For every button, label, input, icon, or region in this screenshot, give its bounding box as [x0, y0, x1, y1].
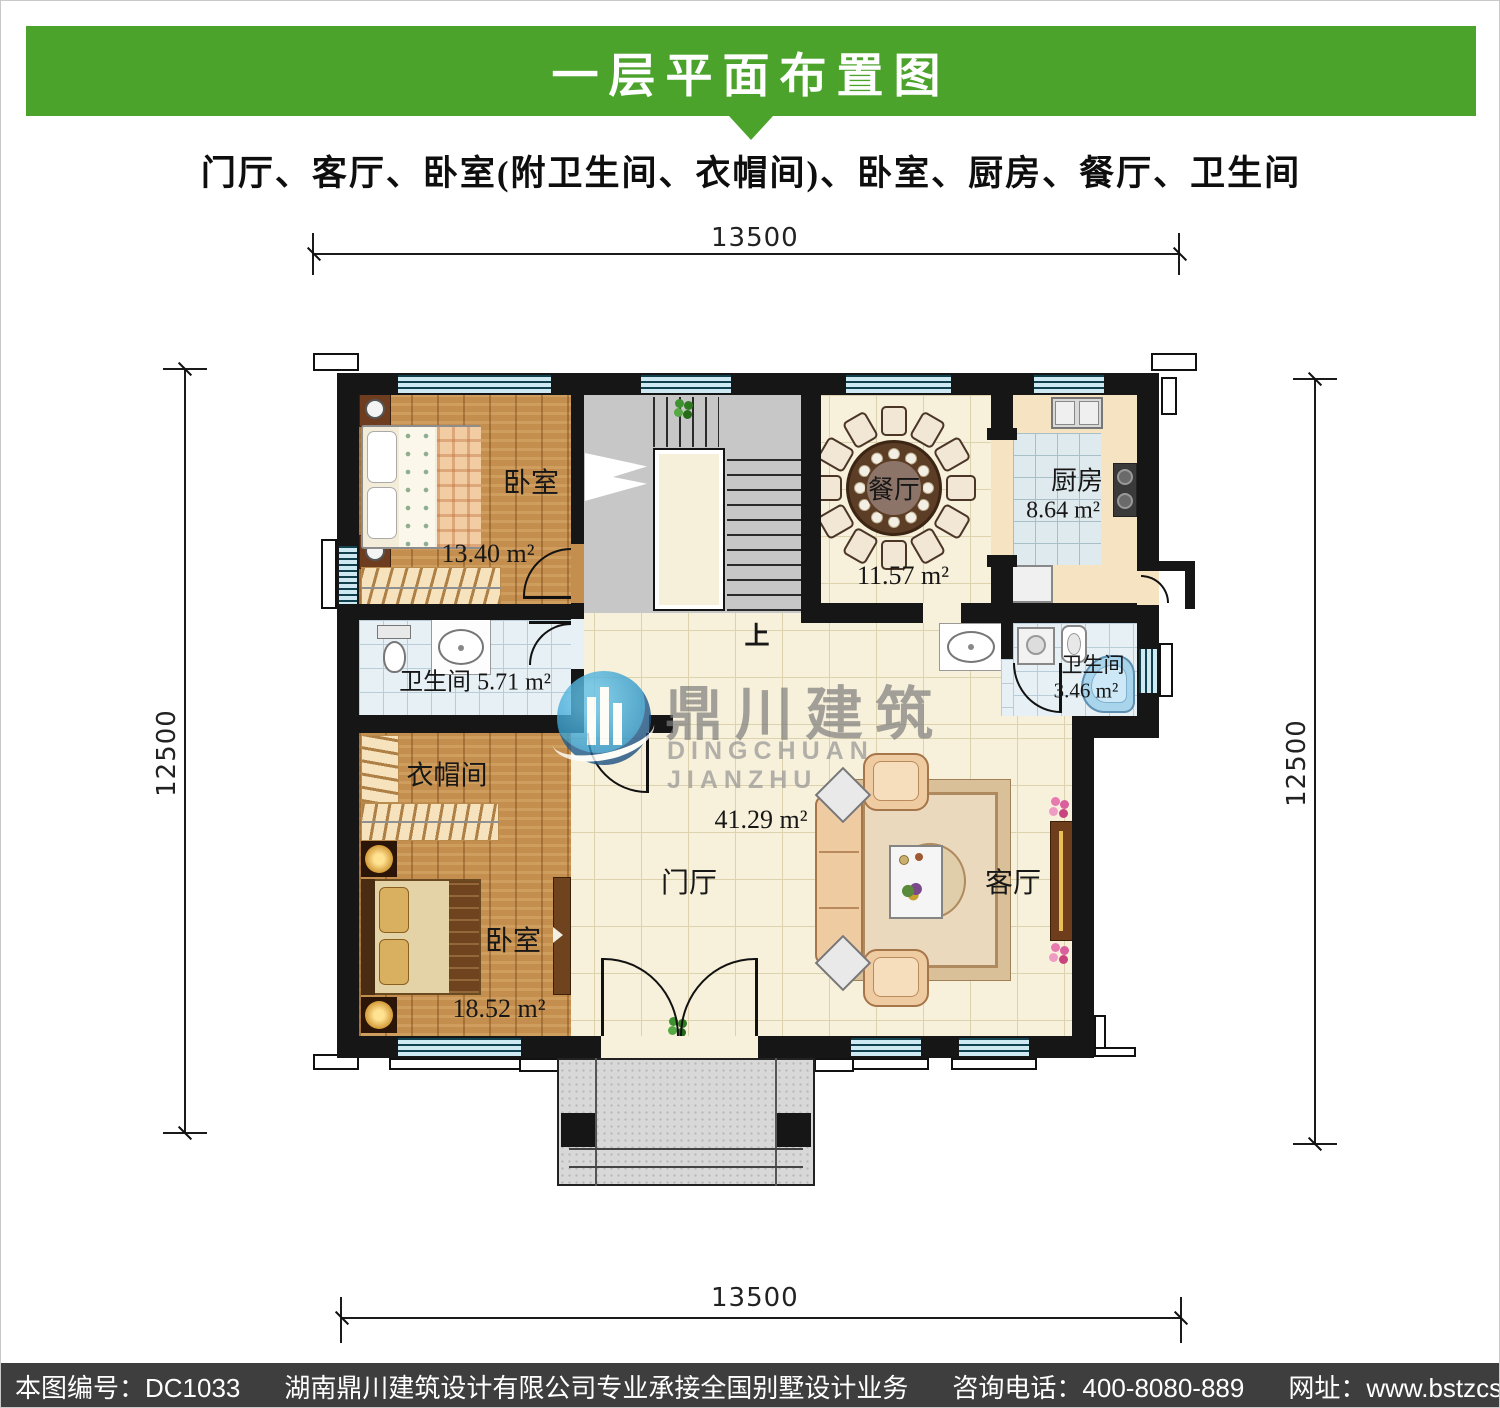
door-opening: [571, 544, 584, 603]
window-sill: [1159, 643, 1173, 697]
side-door-arc: [1141, 575, 1169, 603]
fridge: [1011, 565, 1053, 603]
toilet-icon: [377, 625, 411, 639]
footer-bar: 本图编号：DC1033 湖南鼎川建筑设计有限公司专业承接全国别墅设计业务 咨询电…: [1, 1363, 1500, 1408]
area-label-bedroom1: 13.40 m²: [441, 539, 534, 569]
rack-rod: [361, 821, 499, 823]
room-label-bedroom2: 卧室: [485, 919, 541, 959]
bed-blanket: [449, 881, 479, 993]
wall-segment: [1072, 716, 1094, 1058]
window: [641, 375, 731, 393]
window-sill: [1161, 377, 1177, 415]
sink-basin: [1079, 401, 1099, 425]
room-label-cloakroom: 衣帽间: [407, 754, 488, 793]
lamp-glow-icon: [365, 845, 393, 873]
window: [398, 1038, 521, 1056]
lamp-icon: [365, 399, 385, 419]
pillow: [379, 939, 409, 985]
room-label-bathroom1: 卫生间 5.71 m²: [399, 662, 551, 697]
table-decor: [915, 853, 923, 861]
hanger-rack: [361, 735, 399, 803]
window-sill: [814, 1058, 854, 1072]
area-label-dining: 11.57 m²: [857, 561, 949, 591]
door-jamb: [987, 555, 1017, 567]
room-area: 5.71 m²: [477, 670, 551, 696]
window: [1139, 649, 1157, 693]
door-leaf: [523, 596, 571, 599]
window: [398, 375, 551, 393]
area-label-kitchen: 8.64 m²: [1026, 498, 1100, 525]
window-sill: [1094, 1047, 1136, 1057]
pillow: [367, 487, 397, 539]
area-label-hall: 41.29 m²: [714, 805, 807, 835]
window-sill: [1151, 353, 1197, 371]
table-plant: [899, 881, 925, 901]
pillow: [367, 431, 397, 483]
stair-upper-flight: [653, 397, 719, 447]
sofa-cushion-line: [819, 907, 859, 909]
room-name: 卫生间: [399, 670, 471, 696]
window-sill: [519, 1058, 559, 1072]
porch-column: [561, 1113, 595, 1147]
window-sill: [1094, 1015, 1106, 1051]
dim-bottom-label: 13500: [711, 1283, 799, 1313]
footer-phone: 咨询电话：400-8080-889: [952, 1368, 1244, 1405]
area-label-bathroom2: 3.46 m²: [1054, 679, 1119, 704]
window: [851, 1038, 921, 1056]
window: [1034, 375, 1104, 393]
dim-top-line: [313, 253, 1179, 255]
tv-cabinet-line: [1059, 831, 1063, 931]
title-banner: 一层平面布置图: [26, 26, 1476, 116]
entrance-opening: [601, 1036, 758, 1058]
wall-segment: [821, 603, 923, 623]
flower-icon: [1051, 797, 1060, 806]
porch-step-line: [569, 1166, 803, 1168]
footer-company: 湖南鼎川建筑设计有限公司专业承接全国别墅设计业务: [284, 1368, 908, 1405]
plant-icon: [675, 399, 684, 408]
door-opening: [1001, 659, 1013, 716]
wall-segment: [359, 604, 571, 620]
room-label-living: 客厅: [985, 861, 1041, 901]
footer-sheet-number: 本图编号：DC1033: [15, 1368, 240, 1405]
window-sill: [389, 1058, 529, 1070]
window: [339, 546, 357, 604]
porch-column: [777, 1113, 811, 1147]
stair-void: [653, 448, 725, 611]
exterior-step-wall: [1185, 561, 1195, 609]
wardrobe-rod: [361, 587, 501, 589]
wall-segment: [801, 373, 821, 623]
stair-up-label: 上: [744, 616, 769, 652]
sink-basin: [1055, 401, 1075, 425]
room-label-kitchen: 厨房: [1051, 461, 1103, 498]
dim-right-label: 12500: [1282, 719, 1312, 807]
floorplan-sheet: 一层平面布置图 门厅、客厅、卧室(附卫生间、衣帽间)、卧室、厨房、餐厅、卫生间 …: [0, 0, 1500, 1408]
flower-icon: [1051, 943, 1060, 952]
area-label-bedroom2: 18.52 m²: [452, 994, 545, 1024]
stair-lower-flight: [727, 450, 801, 611]
pillow: [379, 887, 409, 933]
window-sill: [313, 353, 359, 371]
wall-segment: [961, 603, 1013, 623]
window: [959, 1038, 1029, 1056]
dim-top-label: 13500: [711, 223, 799, 253]
dim-bottom-line: [341, 1317, 1181, 1319]
dim-left-line: [184, 369, 186, 1134]
wall-segment: [1013, 603, 1137, 623]
bed-cover: [399, 427, 435, 547]
bed-blanket: [437, 427, 481, 547]
door-opening: [923, 603, 961, 623]
dim-right-line: [1314, 379, 1316, 1145]
lamp-glow-icon: [365, 1001, 393, 1029]
room-label-hall: 门厅: [661, 861, 717, 901]
porch-step-line: [569, 1148, 803, 1150]
burner: [1117, 493, 1133, 509]
sofa-cushion-line: [819, 851, 859, 853]
bed-headboard: [361, 879, 375, 995]
room-list-subtitle: 门厅、客厅、卧室(附卫生间、衣帽间)、卧室、厨房、餐厅、卫生间: [1, 145, 1500, 196]
window-sill: [321, 539, 337, 609]
wall-segment: [1001, 623, 1013, 659]
window-sill: [843, 1058, 929, 1070]
door-opening: [991, 440, 1013, 555]
room-label-dining: 餐厅: [868, 470, 920, 507]
watermark-en-text: DINGCHUAN JIANZHU: [667, 737, 1001, 795]
sink-drain: [458, 645, 464, 651]
window: [846, 375, 951, 393]
banner-pointer-triangle: [729, 116, 773, 140]
room-label-bedroom1: 卧室: [503, 461, 559, 501]
room-label-bathroom2: 卫生间: [1062, 649, 1125, 679]
page-title: 一层平面布置图: [552, 37, 951, 106]
window-sill: [951, 1058, 1037, 1070]
entrance-door-leaf: [755, 958, 758, 1036]
burner: [1117, 469, 1133, 485]
door-jamb: [987, 428, 1017, 440]
washer-drum: [1026, 635, 1046, 655]
watermark: 鼎川建筑 DINGCHUAN JIANZHU: [541, 649, 1001, 789]
table-decor: [899, 855, 909, 865]
dim-left-label: 12500: [152, 709, 182, 797]
footer-website: 网址：www.bstzcs.com: [1288, 1368, 1500, 1405]
armchair-cushion: [873, 957, 919, 997]
